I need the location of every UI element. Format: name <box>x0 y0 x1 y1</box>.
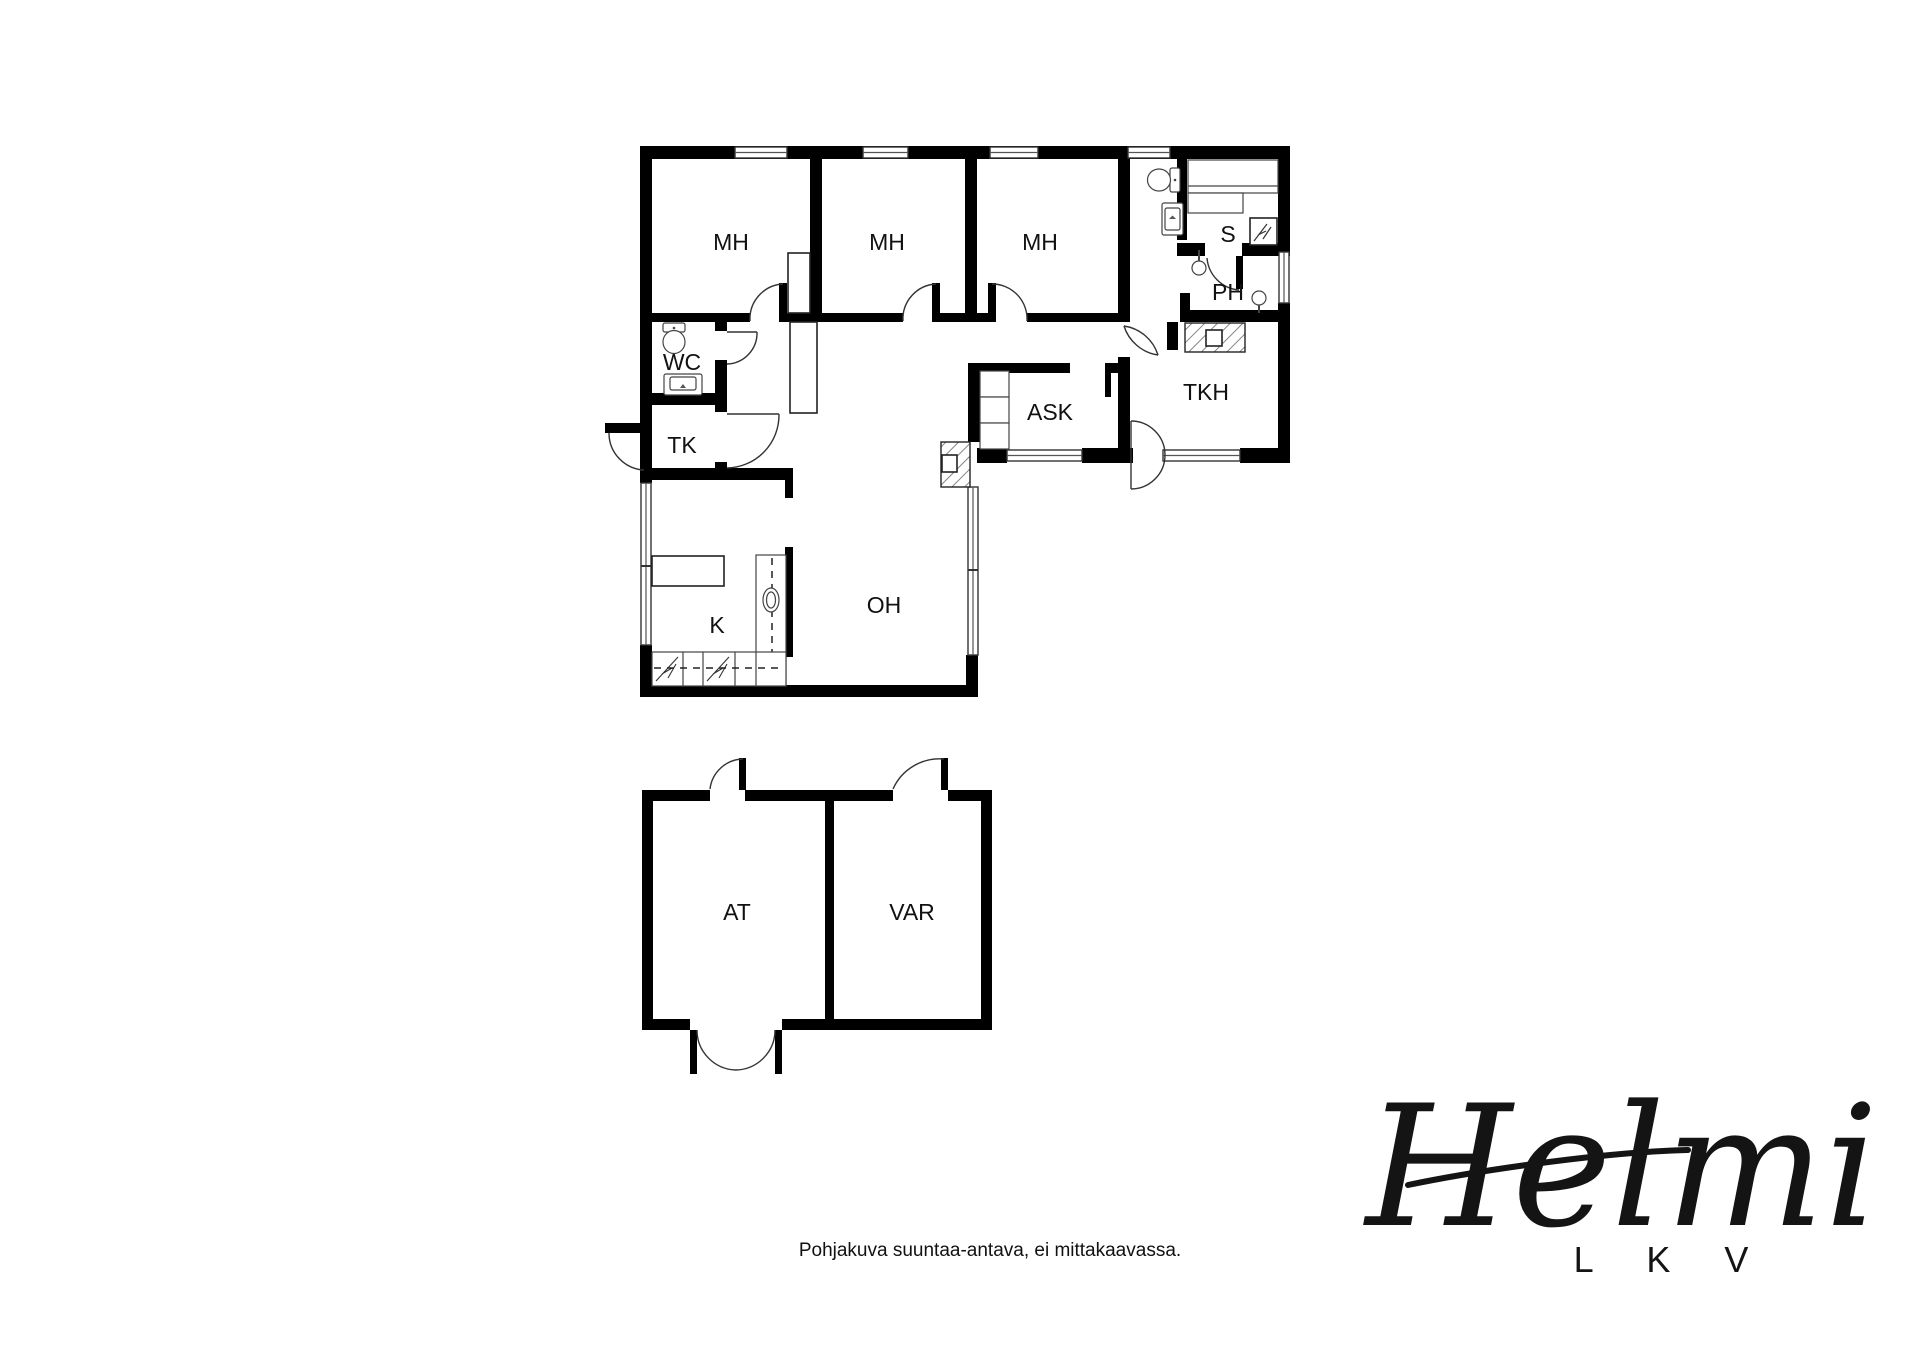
window-mh1 <box>735 147 787 158</box>
sauna-stove-icon <box>1250 218 1277 245</box>
sink-icon <box>1162 203 1183 235</box>
floor-plan: MH MH MH S PH WC TK ASK TKH OH K AT VAR … <box>0 0 1909 1350</box>
room-label-mh3: MH <box>1022 229 1058 255</box>
sink-icon <box>664 374 702 395</box>
room-labels: MH MH MH S PH WC TK ASK TKH OH K AT VAR <box>663 221 1244 925</box>
ask-shelves <box>980 371 1009 449</box>
room-label-wc: WC <box>663 349 701 375</box>
fireplace-tkh <box>1185 323 1245 352</box>
closet-hall <box>790 322 817 413</box>
room-label-oh: OH <box>867 592 902 618</box>
room-label-ask: ASK <box>1027 399 1074 425</box>
room-label-ph: PH <box>1212 279 1244 305</box>
caption: Pohjakuva suuntaa-antava, ei mittakaavas… <box>799 1240 1181 1261</box>
helmi-lkv-logo: Helmi L K V <box>1363 1069 1879 1280</box>
room-label-tk: TK <box>667 432 697 458</box>
garage-building <box>642 758 992 1074</box>
kitchen-table <box>652 556 724 586</box>
window-tkh <box>1163 450 1240 461</box>
sauna-benches <box>1188 160 1278 213</box>
room-label-mh1: MH <box>713 229 749 255</box>
logo-brand: Helmi <box>1363 1069 1879 1265</box>
room-label-k: K <box>709 612 725 638</box>
window-hall-nook <box>1128 147 1170 158</box>
room-label-at: AT <box>723 899 751 925</box>
shower-icon <box>1252 291 1266 313</box>
window-mh2 <box>863 147 908 158</box>
kitchen-counter <box>652 652 786 686</box>
window-ask <box>1007 450 1082 461</box>
room-label-tkh: TKH <box>1183 379 1229 405</box>
window-kitchen <box>641 483 651 645</box>
room-label-s: S <box>1220 221 1235 247</box>
room-label-mh2: MH <box>869 229 905 255</box>
window-mh3 <box>990 147 1038 158</box>
window-oh <box>968 487 978 655</box>
toilet-icon <box>1148 168 1181 192</box>
closet-mh1 <box>788 253 810 313</box>
room-label-var: VAR <box>889 899 935 925</box>
logo-sub: L K V <box>1574 1239 1771 1280</box>
page: MH MH MH S PH WC TK ASK TKH OH K AT VAR … <box>0 0 1909 1350</box>
window-ph <box>1279 252 1289 303</box>
fireplace-oh <box>941 442 970 487</box>
